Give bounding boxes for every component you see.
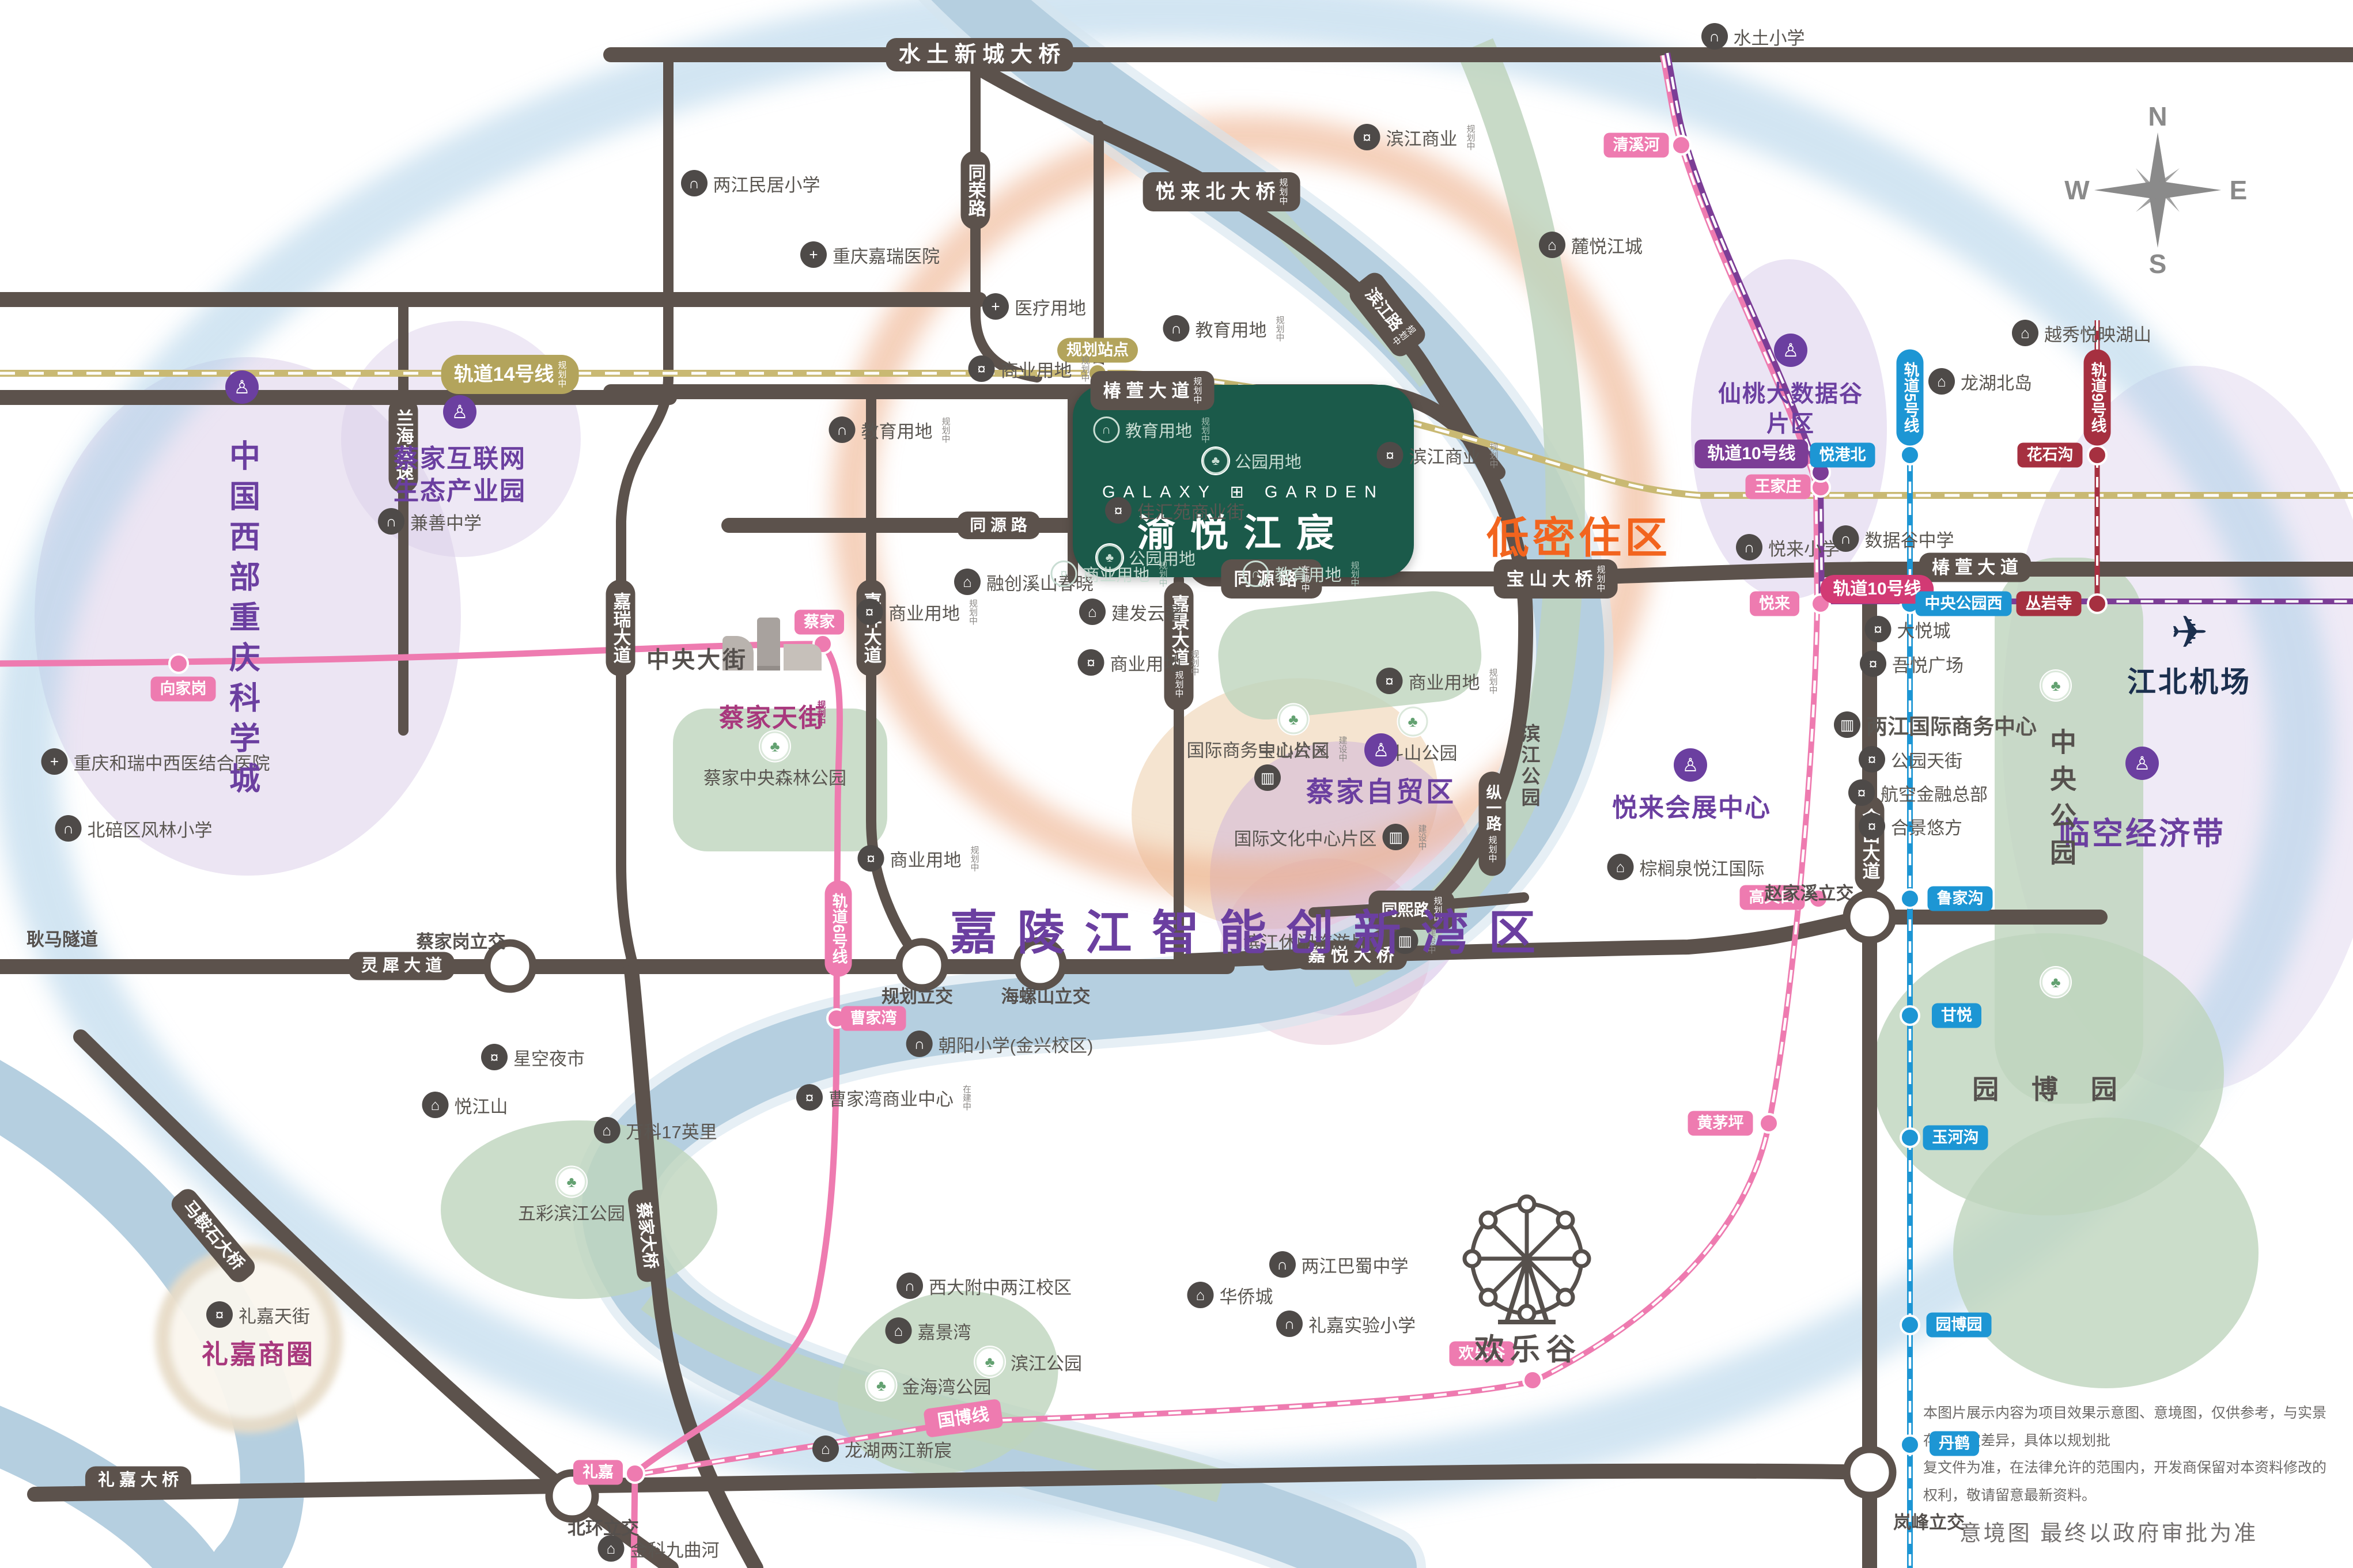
home-icon: ⌂ bbox=[1539, 232, 1565, 258]
shop-icon: ¤ bbox=[969, 355, 995, 382]
status-script: 规划中 bbox=[967, 599, 979, 625]
status-script: 规划中 bbox=[1488, 836, 1497, 863]
poi-icon-only: ♣ bbox=[2041, 967, 2071, 997]
zone-icon: ♙ bbox=[1674, 748, 1707, 782]
school-icon: ∩ bbox=[906, 1031, 933, 1057]
poi: ⌂龙湖北岛 bbox=[1928, 368, 2032, 395]
status-script: 建设中 bbox=[1337, 736, 1349, 762]
shop-icon: ¤ bbox=[1354, 124, 1380, 150]
poi-label: 医疗用地 bbox=[1015, 294, 1086, 320]
poi-icon-only: ♙ bbox=[1364, 733, 1398, 767]
school-icon: ∩ bbox=[681, 170, 708, 196]
poi-label: 两江巴蜀中学 bbox=[1302, 1252, 1409, 1278]
poi-label: 公园用地 bbox=[1235, 449, 1302, 473]
poi: ⌂棕榈泉悦江国际 bbox=[1607, 854, 1765, 880]
station-pill: 甘悦 bbox=[1932, 1003, 1981, 1028]
home-icon: ⌂ bbox=[1607, 854, 1634, 880]
tree-icon: ♣ bbox=[1398, 707, 1428, 737]
zone-icon: ♙ bbox=[1364, 733, 1398, 767]
poi-label: 商业用地 bbox=[1110, 650, 1182, 676]
home-icon: ⌂ bbox=[593, 1117, 620, 1143]
station-pill: 向家岗 bbox=[151, 677, 216, 702]
poi: ¤大悦城 bbox=[1865, 616, 1951, 642]
poi-label: 国际文化中心片区 bbox=[1234, 824, 1377, 850]
poi: ∩礼嘉实验小学 bbox=[1276, 1311, 1416, 1337]
location-map: GALAXY ⊞ GARDEN 渝悦江宸 N S W E 本图片展示内容为项目效… bbox=[0, 0, 2353, 1568]
poi-label: 星空夜市 bbox=[513, 1044, 585, 1070]
home-icon: ⌂ bbox=[1928, 368, 1955, 395]
zone-icon: ♙ bbox=[443, 395, 476, 429]
poi: ¤星空夜市 bbox=[481, 1044, 585, 1070]
poi-label: 万科17英里 bbox=[626, 1118, 717, 1143]
bld-icon: ▥ bbox=[1383, 824, 1409, 850]
shop-icon: ¤ bbox=[1860, 650, 1886, 677]
road-pill: 水 土 新 城 大 桥 bbox=[886, 38, 1073, 71]
home-icon: ⌂ bbox=[1079, 599, 1106, 625]
status-script: 规划中 bbox=[1278, 178, 1287, 206]
status-script: 规划中 bbox=[1465, 124, 1477, 150]
tree-icon: ♣ bbox=[557, 1167, 587, 1197]
poi: +医疗用地 bbox=[982, 293, 1086, 320]
poi: ∩教育用地规划中 bbox=[1163, 315, 1286, 342]
station-pill: 丹鹤 bbox=[1930, 1431, 1979, 1456]
poi-label: 兼善中学 bbox=[410, 509, 482, 535]
poi-label: 两江国际商务中心 bbox=[1866, 709, 2037, 740]
poi: ⌂嘉景湾 bbox=[886, 1317, 971, 1344]
poi: ¤商业用地规划中 bbox=[858, 845, 981, 872]
status-script: 规划中 bbox=[1596, 565, 1605, 593]
bld-icon: ▥ bbox=[1254, 764, 1281, 791]
area-label: 中央大街 bbox=[646, 641, 748, 675]
poi-label: 商业用地 bbox=[1409, 668, 1480, 694]
road-pill: 滨江路规划中 bbox=[1345, 268, 1429, 360]
tree-icon: ♣ bbox=[2041, 967, 2071, 997]
poi-label: 蔡家中央森林公园 bbox=[703, 764, 846, 790]
poi: ∩教育用地规划中 bbox=[1242, 560, 1360, 587]
poi: ¤商业用地规划中 bbox=[969, 355, 1091, 382]
bld-icon: ▥ bbox=[1834, 711, 1860, 738]
poi: ¤公园天街 bbox=[1859, 746, 1962, 772]
poi-label: 滨江商业 bbox=[1409, 442, 1481, 468]
line-pill: 轨道6号线 bbox=[825, 880, 852, 976]
poi-label: 水土小学 bbox=[1734, 24, 1805, 50]
school-icon: ∩ bbox=[1269, 1251, 1296, 1278]
poi: ∩朝阳小学(金兴校区) bbox=[906, 1031, 1094, 1057]
poi: ¤曹家湾商业中心在建中 bbox=[796, 1084, 973, 1111]
home-icon: ⌂ bbox=[2012, 320, 2038, 346]
status-script: 在建中 bbox=[960, 1085, 973, 1111]
poi-label: 商业用地 bbox=[1083, 562, 1149, 586]
poi-label: 华侨城 bbox=[1220, 1282, 1273, 1308]
poi-icon-only: ✈ bbox=[2170, 607, 2208, 659]
school-icon: ∩ bbox=[1093, 416, 1119, 443]
shop-icon: ¤ bbox=[796, 1084, 823, 1111]
station-pill: 鲁家沟 bbox=[1928, 887, 1993, 911]
status-script: 规划中 bbox=[1079, 356, 1091, 382]
poi-label: 吾悦广场 bbox=[1892, 651, 1964, 677]
area-label: 低密住区 bbox=[1486, 504, 1671, 566]
road-pill: 嘉瑞大道 bbox=[606, 580, 635, 676]
poi-label: 嘉景湾 bbox=[918, 1318, 971, 1344]
poi-label: 航空金融总部 bbox=[1881, 780, 1988, 806]
poi-label: 国际商务中心片区 bbox=[1187, 736, 1330, 762]
poi-icon-only: ♙ bbox=[2125, 747, 2159, 780]
line-pill: 国博线 bbox=[923, 1399, 1004, 1438]
area-label: 中央公园 bbox=[2042, 728, 2080, 876]
area-label: 江北机场 bbox=[2127, 659, 2252, 700]
shop-icon: ¤ bbox=[1078, 649, 1104, 676]
tree-icon: ♣ bbox=[2041, 671, 2071, 700]
poi: ∩教育用地规划中 bbox=[829, 416, 952, 443]
area-label: 嘉 陵 江 智 能 创 新 湾 区 bbox=[950, 895, 1539, 963]
poi: ∩教育用地规划中 bbox=[1093, 416, 1211, 443]
school-icon: ∩ bbox=[378, 508, 404, 535]
poi-label: 教育用地 bbox=[1196, 316, 1267, 342]
shop-icon: ¤ bbox=[1377, 442, 1404, 468]
poi: ¤滨江商业规划中 bbox=[1377, 442, 1500, 468]
road-pill: 嘉祥大道 bbox=[857, 580, 886, 676]
area-label: 蔡家自贸区 bbox=[1306, 769, 1456, 809]
poi: 国际商务中心片区建设中 bbox=[1187, 736, 1349, 762]
station-pill: 中央公园西 bbox=[1916, 592, 2012, 616]
zone-icon: ♙ bbox=[2125, 747, 2159, 780]
poi-icon-only: ♙ bbox=[1774, 334, 1807, 367]
shop-icon: ¤ bbox=[206, 1301, 233, 1328]
road-pill: 礼 嘉 大 桥 bbox=[85, 1467, 191, 1495]
home-icon: ⌂ bbox=[954, 569, 981, 595]
poi-label: 金科九曲河 bbox=[630, 1536, 720, 1562]
station-pill: 玉河沟 bbox=[1923, 1126, 1988, 1150]
poi-label: 悦来小学 bbox=[1768, 535, 1840, 560]
school-icon: ∩ bbox=[1242, 560, 1269, 587]
shop-icon: ¤ bbox=[1859, 813, 1885, 839]
road-pill: 纵一路规划中 bbox=[1479, 772, 1506, 876]
road-pill: 椿 萱 大 道 bbox=[1919, 553, 2031, 582]
poi-label: 数据谷中学 bbox=[1865, 526, 1954, 552]
shop-icon: ¤ bbox=[858, 845, 884, 872]
station-pill: 清溪河 bbox=[1604, 133, 1669, 158]
home-icon: ⌂ bbox=[598, 1535, 625, 1562]
school-icon: ∩ bbox=[896, 1272, 923, 1299]
area-label: 片区 bbox=[1766, 405, 1815, 438]
poi: ∩两江民居小学 bbox=[681, 170, 820, 196]
poi: ⌂华侨城 bbox=[1187, 1282, 1273, 1308]
poi-icon-only: ♙ bbox=[443, 395, 476, 429]
poi: ⌂悦江山 bbox=[422, 1092, 508, 1118]
station-pill: 王家庄 bbox=[1746, 475, 1811, 499]
tree-icon: ♣ bbox=[1202, 448, 1229, 474]
school-icon: ∩ bbox=[55, 815, 82, 842]
poi: ¤商业用地规划中 bbox=[1050, 560, 1168, 587]
line-pill: 轨道9号线 bbox=[2084, 349, 2111, 445]
poi-label: 商业用地 bbox=[888, 599, 960, 625]
status-script: 规划中 bbox=[1199, 417, 1211, 443]
poi: ¤礼嘉天街 bbox=[206, 1301, 310, 1328]
status-script: 规划中 bbox=[969, 846, 981, 872]
station-pill: 黄茅坪 bbox=[1688, 1111, 1753, 1136]
poi-label: 越秀悦映湖山 bbox=[2044, 320, 2151, 346]
poi-label: 商业用地 bbox=[890, 846, 962, 872]
tree-icon: ♣ bbox=[1278, 705, 1308, 734]
poi-label: 大悦城 bbox=[1897, 616, 1951, 642]
poi-label: 滨江公园 bbox=[1011, 1349, 1082, 1375]
poi: ¤商业用地规划中 bbox=[1078, 649, 1201, 676]
station-pill: 悦港北 bbox=[1810, 443, 1875, 468]
hosp-icon: + bbox=[982, 293, 1009, 320]
poi: ⌂建发云著 bbox=[1079, 599, 1183, 625]
road-pill: 灵 犀 大 道 bbox=[349, 952, 455, 980]
road-pill: 椿 萱 大 道规划中 bbox=[1091, 371, 1215, 410]
plane-icon: ✈ bbox=[2170, 607, 2208, 659]
area-label: 礼嘉商圈 bbox=[202, 1334, 315, 1372]
school-icon: ∩ bbox=[1163, 315, 1190, 342]
junction-label: 海螺山立交 bbox=[1001, 982, 1091, 1008]
zone-icon: ♙ bbox=[1774, 334, 1807, 367]
shop-icon: ¤ bbox=[1848, 779, 1875, 806]
poi-label: 教育用地 bbox=[861, 417, 933, 443]
shop-icon: ¤ bbox=[481, 1044, 508, 1070]
poi-label: 曹家湾商业中心 bbox=[829, 1085, 954, 1111]
poi: ∩悦来小学 bbox=[1736, 534, 1840, 560]
poi: ⌂龙湖两江新宸 bbox=[812, 1436, 952, 1462]
poi: ¤佳汇苑商业街 bbox=[1105, 497, 1244, 524]
status-script: 规划中 bbox=[1274, 316, 1286, 342]
hosp-icon: + bbox=[800, 241, 827, 268]
school-icon: ∩ bbox=[1736, 534, 1762, 560]
poi-icon-only: ▥ bbox=[1254, 764, 1281, 791]
poi: ♣蔡家中央森林公园 bbox=[703, 732, 846, 790]
line-pill: 轨道14号线规划中 bbox=[441, 355, 579, 394]
poi: ¤商业用地规划中 bbox=[1376, 668, 1499, 694]
shop-icon: ¤ bbox=[1105, 497, 1132, 524]
road-pill: 金山大道 bbox=[1855, 796, 1885, 892]
poi-label: 龙湖北岛 bbox=[1961, 369, 2032, 395]
poi: ¤吾悦广场 bbox=[1860, 650, 1964, 677]
poi-label: 教育用地 bbox=[1125, 418, 1192, 442]
status-script: 规划中 bbox=[1349, 561, 1361, 587]
school-icon: ∩ bbox=[1833, 525, 1859, 552]
poi-label: 礼嘉实验小学 bbox=[1308, 1311, 1416, 1337]
station-pill: 花石沟 bbox=[2018, 443, 2083, 468]
poi-label: 五彩滨江公园 bbox=[518, 1199, 625, 1225]
status-script: 规划中 bbox=[1193, 377, 1201, 404]
hosp-icon: + bbox=[41, 748, 68, 775]
poi: ⌂金科九曲河 bbox=[598, 1535, 720, 1562]
poi: +重庆嘉瑞医院 bbox=[800, 241, 940, 268]
poi: ∩北碚区风林小学 bbox=[55, 815, 213, 842]
poi-label: 佳汇苑商业街 bbox=[1137, 498, 1244, 524]
home-icon: ⌂ bbox=[886, 1317, 912, 1344]
area-label: 蔡家互联网 bbox=[394, 438, 526, 475]
poi-label: 悦江山 bbox=[455, 1092, 508, 1118]
junction-label: 耿马隧道 bbox=[27, 925, 98, 951]
area-label: 园 博 园 bbox=[1972, 1069, 2130, 1107]
area-label: 悦来会展中心 bbox=[1612, 787, 1771, 824]
road-pill: 蔡家大桥 bbox=[627, 1188, 666, 1283]
junction-label: 赵家溪立交 bbox=[1765, 879, 1854, 905]
poi-label: 北碚区风林小学 bbox=[88, 816, 213, 842]
status-script: 规划中 bbox=[1488, 442, 1500, 468]
shop-icon: ¤ bbox=[1376, 668, 1403, 694]
home-icon: ⌂ bbox=[812, 1436, 839, 1462]
status-script: 规划中 bbox=[1157, 561, 1169, 587]
poi-icon-only: ♙ bbox=[225, 370, 259, 404]
poi: ♣公园用地 bbox=[1202, 448, 1302, 474]
poi-icon-only: ♙ bbox=[1674, 748, 1707, 782]
poi-label: 金海湾公园 bbox=[902, 1373, 992, 1399]
junction-label: 规划立交 bbox=[882, 982, 953, 1008]
poi-label: 西大附中两江校区 bbox=[929, 1273, 1072, 1299]
poi: ♣金海湾公园 bbox=[867, 1370, 992, 1400]
poi-label: 公园天街 bbox=[1891, 747, 1962, 772]
area-label: 生态产业园 bbox=[394, 470, 526, 507]
line-pill: 轨道10号线 bbox=[1694, 440, 1808, 468]
poi: ♣五彩滨江公园 bbox=[518, 1167, 625, 1225]
poi: 国际文化中心片区▥建设中 bbox=[1234, 824, 1428, 850]
junction-label: 岚峰立交 bbox=[1893, 1508, 1965, 1534]
junction-label: 蔡家岗立交 bbox=[417, 927, 506, 953]
area-label: 临空经济带 bbox=[2059, 808, 2226, 854]
shop-icon: ¤ bbox=[1859, 746, 1885, 772]
poi: ∩兼善中学 bbox=[378, 508, 482, 535]
road-pill: 马鞍石大桥 bbox=[167, 1185, 259, 1286]
poi-label: 教育用地 bbox=[1274, 562, 1341, 586]
poi-label: 棕榈泉悦江国际 bbox=[1640, 854, 1765, 880]
home-icon: ⌂ bbox=[422, 1092, 449, 1118]
status-script: 建设中 bbox=[1416, 824, 1428, 850]
station-pill: 蔡家 bbox=[795, 610, 844, 635]
area-label: 中国西部重庆科学城 bbox=[220, 440, 265, 802]
poi: ⌂万科17英里 bbox=[593, 1117, 717, 1143]
poi-label: 建发云著 bbox=[1111, 599, 1183, 625]
shop-icon: ¤ bbox=[856, 599, 883, 625]
road-pill: 同 源 路 bbox=[957, 512, 1040, 539]
area-label: 欢乐谷 bbox=[1474, 1325, 1582, 1369]
road-pill: 悦 来 北 大 桥规划中 bbox=[1143, 172, 1300, 211]
poi: ∩数据谷中学 bbox=[1833, 525, 1954, 552]
poi-icon-only: ♣ bbox=[2041, 671, 2071, 700]
tree-icon: ♣ bbox=[760, 732, 790, 762]
poi: ∩西大附中两江校区 bbox=[896, 1272, 1072, 1299]
school-icon: ∩ bbox=[1701, 23, 1728, 50]
school-icon: ∩ bbox=[1276, 1311, 1303, 1337]
poi: ¤滨江商业规划中 bbox=[1354, 124, 1477, 150]
poi-label: 龙湖两江新宸 bbox=[845, 1436, 952, 1462]
area-label: 蔡家天街 bbox=[719, 697, 825, 734]
poi-label: 麓悦江城 bbox=[1571, 232, 1643, 258]
poi: ▥两江国际商务中心 bbox=[1834, 709, 2037, 740]
poi-label: 朝阳小学(金兴校区) bbox=[939, 1031, 1094, 1057]
poi: ∩两江巴蜀中学 bbox=[1269, 1251, 1409, 1278]
status-script: 规划中 bbox=[1487, 668, 1499, 694]
poi-label: 两江民居小学 bbox=[713, 171, 820, 196]
poi: ⌂越秀悦映湖山 bbox=[2012, 320, 2151, 346]
station-pill: 悦来 bbox=[1750, 592, 1799, 616]
labels-layer: 水 土 新 城 大 桥悦 来 北 大 桥规划中滨江路规划中同荣路椿 萱 大 道规… bbox=[0, 0, 2353, 1568]
status-script: 规划中 bbox=[940, 417, 952, 443]
area-label: 仙桃大数据谷 bbox=[1718, 375, 1863, 408]
poi-label: 商业用地 bbox=[1001, 356, 1072, 382]
area-label: 规划中 bbox=[815, 700, 827, 726]
station-pill: 曹家湾 bbox=[841, 1006, 906, 1031]
poi: ¤商业用地规划中 bbox=[856, 599, 979, 625]
tree-icon: ♣ bbox=[867, 1370, 896, 1400]
status-script: 规划中 bbox=[1189, 650, 1201, 676]
road-pill: 同荣路 bbox=[961, 151, 990, 230]
station-pill: 园博园 bbox=[1927, 1313, 1992, 1338]
zone-icon: ♙ bbox=[225, 370, 259, 404]
poi: ⌂麓悦江城 bbox=[1539, 232, 1643, 258]
status-script: 规划中 bbox=[557, 361, 566, 388]
school-icon: ∩ bbox=[829, 416, 856, 443]
poi-label: 合景悠方 bbox=[1891, 813, 1962, 839]
station-pill: 丛岩寺 bbox=[2017, 592, 2082, 616]
line-pill: 轨道5号线 bbox=[1897, 349, 1924, 445]
poi-label: 礼嘉天街 bbox=[239, 1302, 310, 1328]
poi: ¤合景悠方 bbox=[1859, 813, 1962, 839]
shop-icon: ¤ bbox=[1050, 560, 1077, 587]
poi-label: 滨江商业 bbox=[1386, 124, 1458, 150]
poi: ∩水土小学 bbox=[1701, 23, 1805, 50]
shop-icon: ¤ bbox=[1865, 616, 1892, 642]
poi: ¤航空金融总部 bbox=[1848, 779, 1988, 806]
poi-label: 重庆嘉瑞医院 bbox=[833, 242, 940, 268]
home-icon: ⌂ bbox=[1187, 1282, 1214, 1308]
station-pill: 礼嘉 bbox=[573, 1460, 623, 1485]
area-label: 滨江公园 bbox=[1515, 724, 1543, 809]
